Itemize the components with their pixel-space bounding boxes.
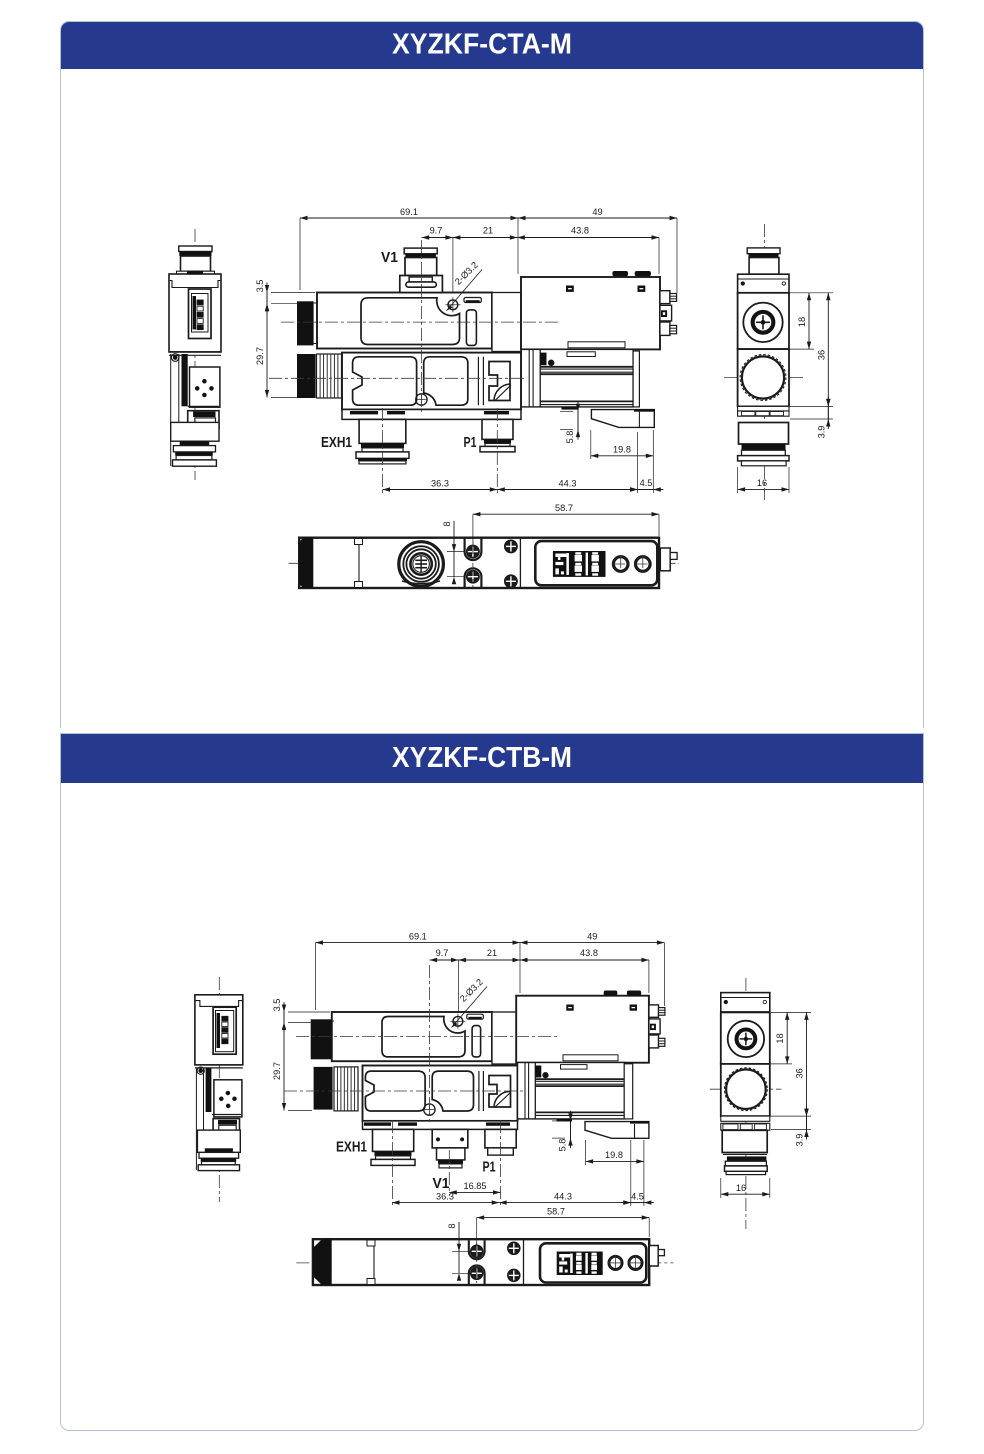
svg-text:36: 36 — [795, 1068, 805, 1078]
svg-text:19.8: 19.8 — [605, 1150, 623, 1160]
svg-text:18: 18 — [775, 1033, 785, 1043]
svg-text:21: 21 — [487, 948, 497, 958]
svg-text:36.3: 36.3 — [431, 478, 449, 488]
svg-text:3.5: 3.5 — [255, 280, 265, 293]
svg-text:4.5: 4.5 — [640, 478, 653, 488]
svg-text:49: 49 — [587, 931, 597, 941]
svg-text:4.5: 4.5 — [631, 1191, 644, 1201]
svg-text:2-Ø3.2: 2-Ø3.2 — [453, 260, 480, 287]
svg-text:43.8: 43.8 — [580, 948, 598, 958]
svg-text:21: 21 — [483, 226, 493, 236]
svg-text:58.7: 58.7 — [547, 1206, 565, 1216]
svg-text:EXH1: EXH1 — [321, 434, 352, 451]
svg-text:P1: P1 — [464, 434, 477, 451]
svg-text:36.3: 36.3 — [436, 1191, 454, 1201]
svg-text:16: 16 — [736, 1183, 746, 1193]
svg-text:EXH1: EXH1 — [336, 1139, 367, 1156]
svg-text:29.7: 29.7 — [272, 1062, 282, 1080]
svg-text:44.3: 44.3 — [559, 478, 577, 488]
svg-text:XYZKF-CTB-M: XYZKF-CTB-M — [392, 742, 572, 774]
svg-text:XYZKF-CTA-M: XYZKF-CTA-M — [392, 29, 572, 61]
svg-text:16.85: 16.85 — [464, 1181, 487, 1191]
svg-text:P1: P1 — [483, 1159, 496, 1176]
svg-text:8: 8 — [447, 1223, 457, 1228]
svg-text:9.7: 9.7 — [436, 948, 449, 958]
svg-text:69.1: 69.1 — [400, 207, 418, 217]
svg-text:16: 16 — [757, 478, 767, 488]
svg-text:5.8: 5.8 — [565, 431, 575, 444]
svg-text:3.5: 3.5 — [272, 999, 282, 1012]
svg-text:69.1: 69.1 — [409, 931, 427, 941]
svg-text:49: 49 — [592, 207, 602, 217]
svg-text:3.9: 3.9 — [795, 1134, 805, 1147]
svg-text:43.8: 43.8 — [571, 226, 589, 236]
svg-text:18: 18 — [797, 317, 807, 327]
svg-text:5.8: 5.8 — [558, 1139, 568, 1152]
svg-text:36: 36 — [816, 350, 826, 360]
svg-text:V1: V1 — [381, 249, 398, 266]
svg-text:9.7: 9.7 — [430, 226, 443, 236]
svg-text:58.7: 58.7 — [555, 503, 573, 513]
svg-text:3.9: 3.9 — [816, 426, 826, 439]
svg-text:V1: V1 — [433, 1175, 450, 1192]
svg-text:2-Ø3.2: 2-Ø3.2 — [458, 977, 485, 1004]
svg-text:29.7: 29.7 — [255, 347, 265, 365]
svg-text:8: 8 — [442, 521, 452, 526]
svg-text:44.3: 44.3 — [554, 1191, 572, 1201]
svg-text:19.8: 19.8 — [613, 445, 631, 455]
